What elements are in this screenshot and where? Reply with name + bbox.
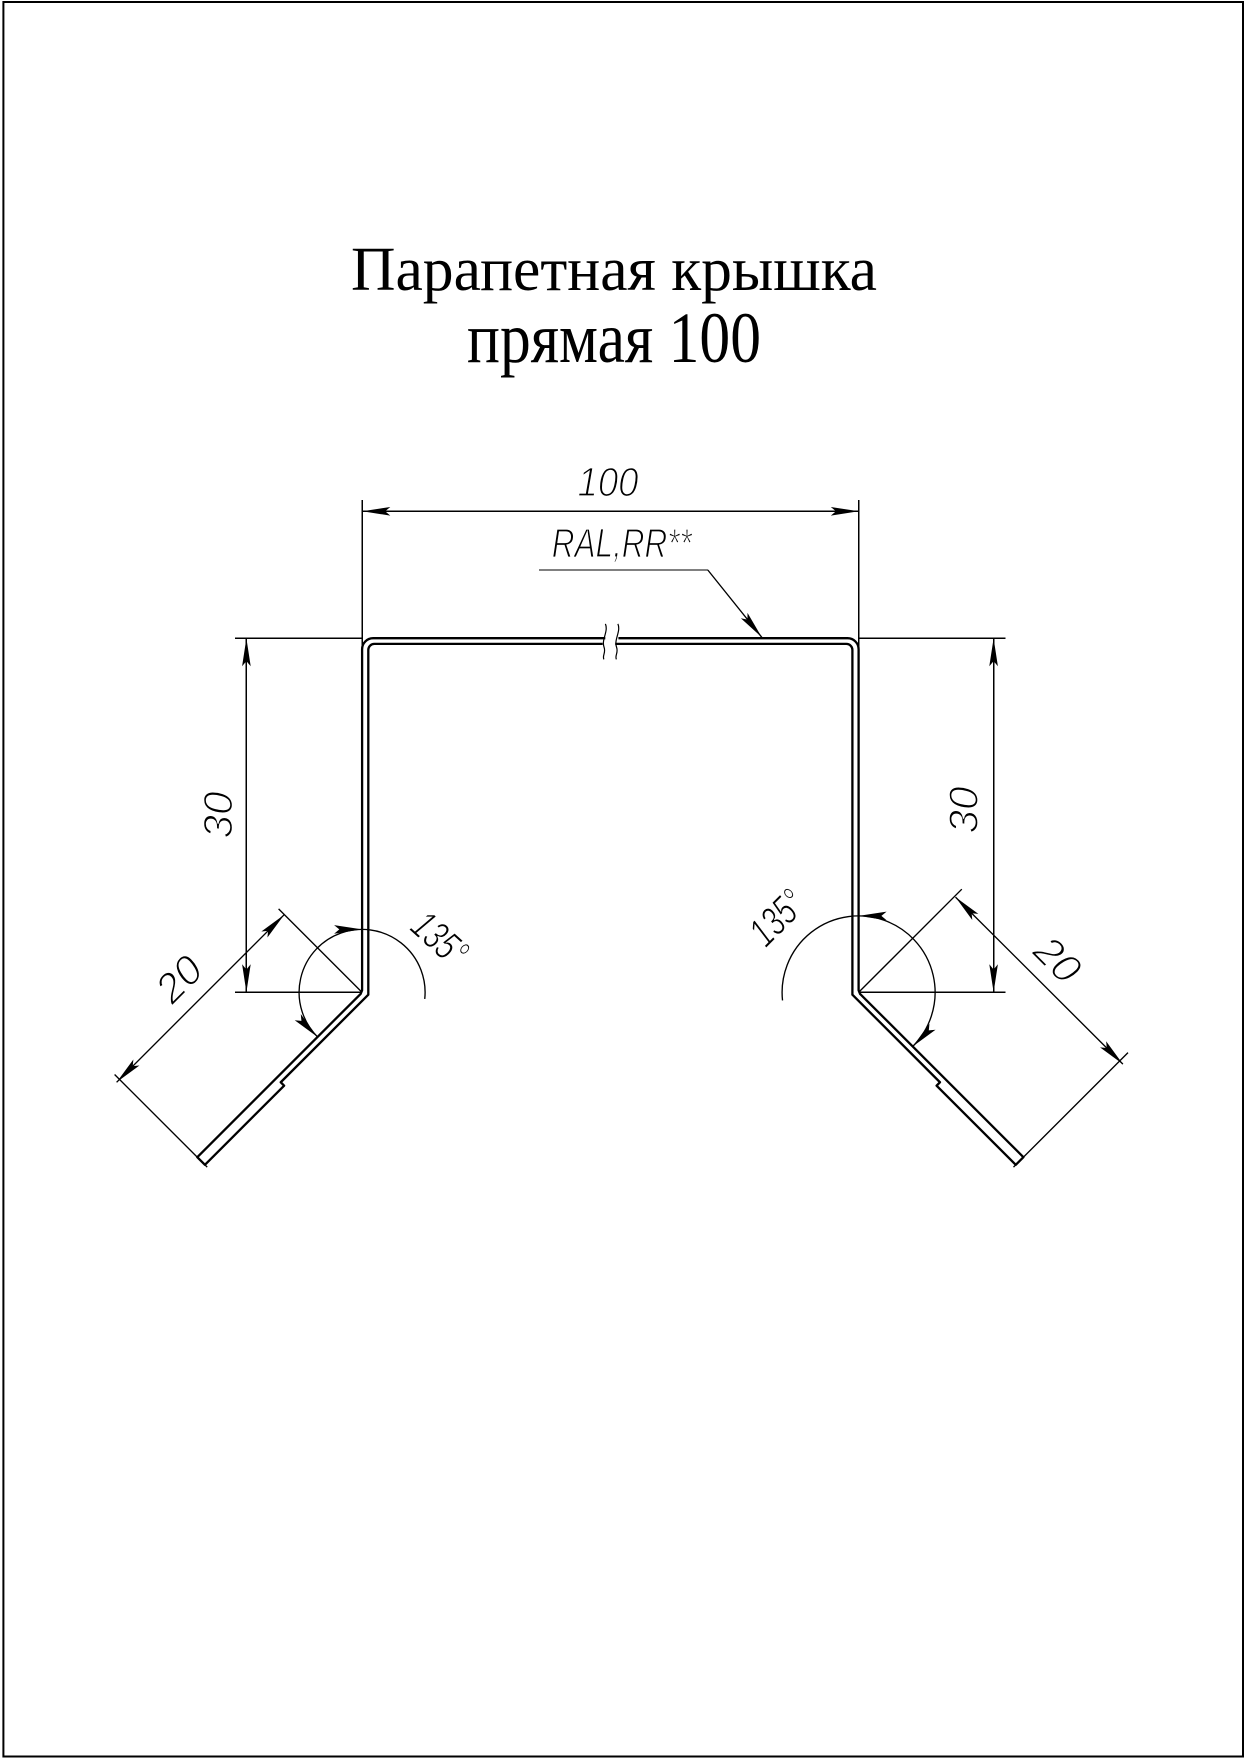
svg-text:RAL,RR**: RAL,RR** xyxy=(552,520,694,566)
svg-text:30: 30 xyxy=(941,786,987,833)
svg-text:прямая 100: прямая 100 xyxy=(467,298,761,378)
svg-text:Парапетная крышка: Парапетная крышка xyxy=(351,236,877,304)
svg-text:30: 30 xyxy=(195,791,241,838)
svg-text:100: 100 xyxy=(578,459,639,505)
